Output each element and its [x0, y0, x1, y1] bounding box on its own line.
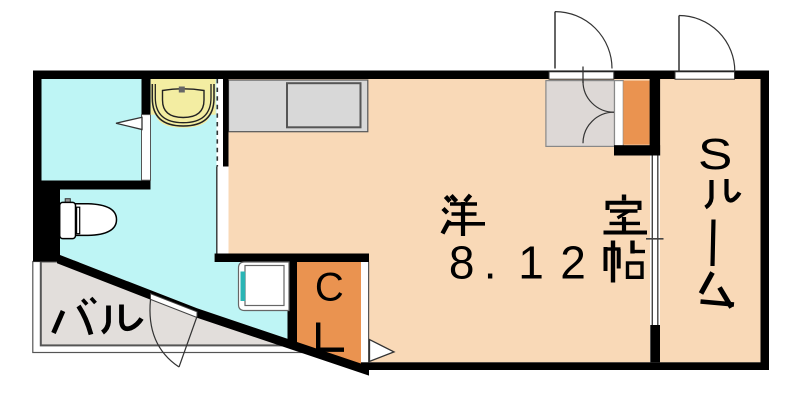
svg-text:8: 8 [449, 237, 475, 289]
svg-text:2: 2 [560, 237, 586, 289]
svg-text:1: 1 [518, 237, 544, 289]
svg-text:.: . [484, 237, 497, 289]
svg-text:S: S [698, 130, 732, 179]
svg-text:C: C [315, 266, 344, 310]
